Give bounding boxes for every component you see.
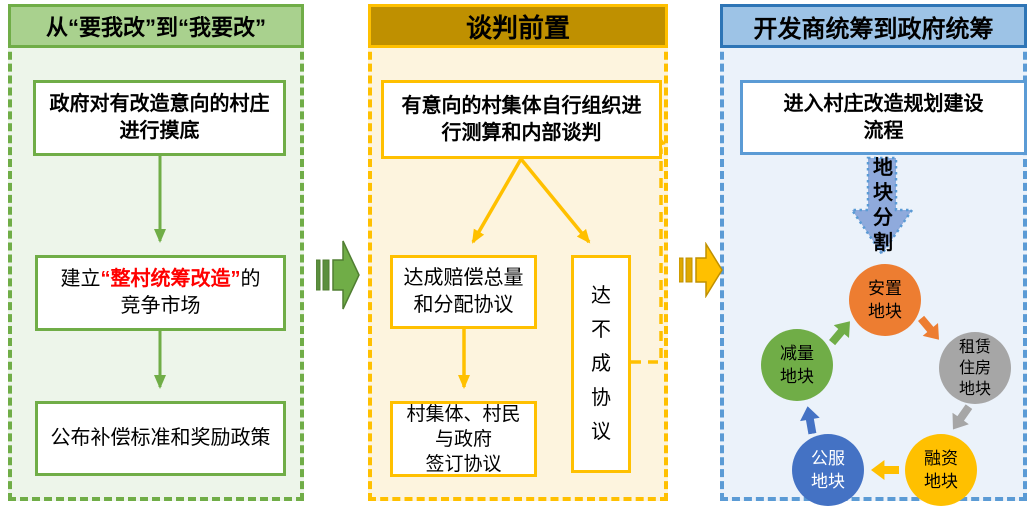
split-arrow-label: 地块分割 — [871, 156, 895, 256]
arrow-fail-feedback-loop — [631, 134, 661, 362]
node-government-survey-line2: 进行摸底 — [120, 118, 200, 145]
cycle-node-public-service-plot: 公服 地块 — [792, 434, 864, 506]
node-village-self-organize: 有意向的村集体自行组织进 行测算和内部谈判 — [381, 80, 662, 159]
panel-motivation: 从“要我改”到“我要改” 政府对有改造意向的村庄 进行摸底 建立“整村统筹改造”… — [8, 4, 304, 501]
competition-market-suffix: 的 — [241, 268, 261, 290]
panel-government-coordination: 开发商统筹到政府统筹 进入村庄改造规划建设 流程 地块分割 安置 地块 租赁 住… — [720, 4, 1027, 501]
node-no-agreement-label: 达不成协议 — [590, 279, 612, 449]
node-village-self-organize-line2: 行测算和内部谈判 — [442, 120, 602, 147]
cycle-node-rental-housing-plot: 租赁 住房 地块 — [939, 332, 1011, 404]
node-reach-agreement-line1: 达成赔偿总量 — [404, 265, 524, 292]
cycle-arrow-public-service-to-reduction — [798, 404, 823, 435]
cycle-node-resettlement-line1: 安置 — [868, 277, 902, 300]
node-competition-market-line1: 建立“整村统筹改造”的 — [61, 266, 261, 293]
node-planning-process: 进入村庄改造规划建设 流程 — [740, 80, 1027, 155]
cycle-node-financing-line1: 融资 — [924, 447, 958, 470]
node-village-self-organize-line1: 有意向的村集体自行组织进 — [402, 93, 642, 120]
cycle-node-reduction-plot: 减量 地块 — [761, 329, 833, 401]
transition-arrow-gold — [679, 242, 723, 298]
cycle-node-resettlement-line2: 地块 — [868, 300, 902, 323]
cycle-node-reduction-line2: 地块 — [780, 365, 814, 388]
cycle-node-resettlement-plot: 安置 地块 — [849, 264, 921, 336]
node-competition-market-line2: 竞争市场 — [121, 293, 201, 320]
node-no-agreement: 达不成协议 — [571, 255, 631, 473]
cycle-arrow-financing-to-public-service — [871, 460, 899, 480]
cycle-arrow-rental-to-financing — [945, 401, 977, 435]
node-compensation-policy-label: 公布补偿标准和奖励政策 — [51, 425, 271, 452]
competition-market-highlight: “整村统筹改造” — [101, 268, 241, 290]
cycle-node-reduction-line1: 减量 — [780, 342, 814, 365]
cycle-node-rental-line3: 地块 — [959, 379, 991, 400]
cycle-node-public-service-line2: 地块 — [811, 470, 845, 493]
cycle-arrow-resettlement-to-rental — [913, 312, 946, 346]
arrow-organize-to-agreement — [473, 159, 521, 242]
node-reach-agreement: 达成赔偿总量 和分配协议 — [390, 255, 537, 329]
node-reach-agreement-line2: 和分配协议 — [414, 292, 514, 319]
panel-motivation-title: 从“要我改”到“我要改” — [8, 4, 304, 48]
cycle-node-financing-plot: 融资 地块 — [905, 434, 977, 506]
node-government-survey-line1: 政府对有改造意向的村庄 — [50, 91, 270, 118]
cycle-arrow-reduction-to-resettlement — [824, 315, 857, 349]
node-compensation-policy: 公布补偿标准和奖励政策 — [35, 401, 286, 476]
node-sign-agreement-line2: 与政府 — [435, 427, 492, 452]
node-planning-process-line2: 流程 — [864, 118, 904, 145]
cycle-node-public-service-line1: 公服 — [811, 447, 845, 470]
panel-negotiation: 谈判前置 有意向的村集体自行组织进 行测算和内部谈判 达成赔偿总量 和分配协议 … — [368, 4, 668, 501]
cycle-node-financing-line2: 地块 — [924, 470, 958, 493]
node-sign-agreement-line1: 村集体、村民 — [406, 402, 520, 427]
arrow-organize-to-fail — [521, 159, 589, 242]
node-government-survey: 政府对有改造意向的村庄 进行摸底 — [33, 80, 286, 156]
node-planning-process-line1: 进入村庄改造规划建设 — [784, 91, 984, 118]
panel-negotiation-title: 谈判前置 — [368, 4, 668, 48]
flow-diagram: 从“要我改”到“我要改” 政府对有改造意向的村庄 进行摸底 建立“整村统筹改造”… — [0, 0, 1031, 508]
node-sign-agreement: 村集体、村民 与政府 签订协议 — [390, 401, 537, 477]
competition-market-prefix: 建立 — [61, 268, 101, 290]
cycle-node-rental-line2: 住房 — [959, 358, 991, 379]
node-sign-agreement-line3: 签订协议 — [425, 452, 501, 477]
panel-government-coordination-title: 开发商统筹到政府统筹 — [720, 4, 1027, 48]
cycle-node-rental-line1: 租赁 — [959, 337, 991, 358]
transition-arrow-green — [316, 236, 360, 314]
node-competition-market: 建立“整村统筹改造”的 竞争市场 — [35, 255, 286, 331]
